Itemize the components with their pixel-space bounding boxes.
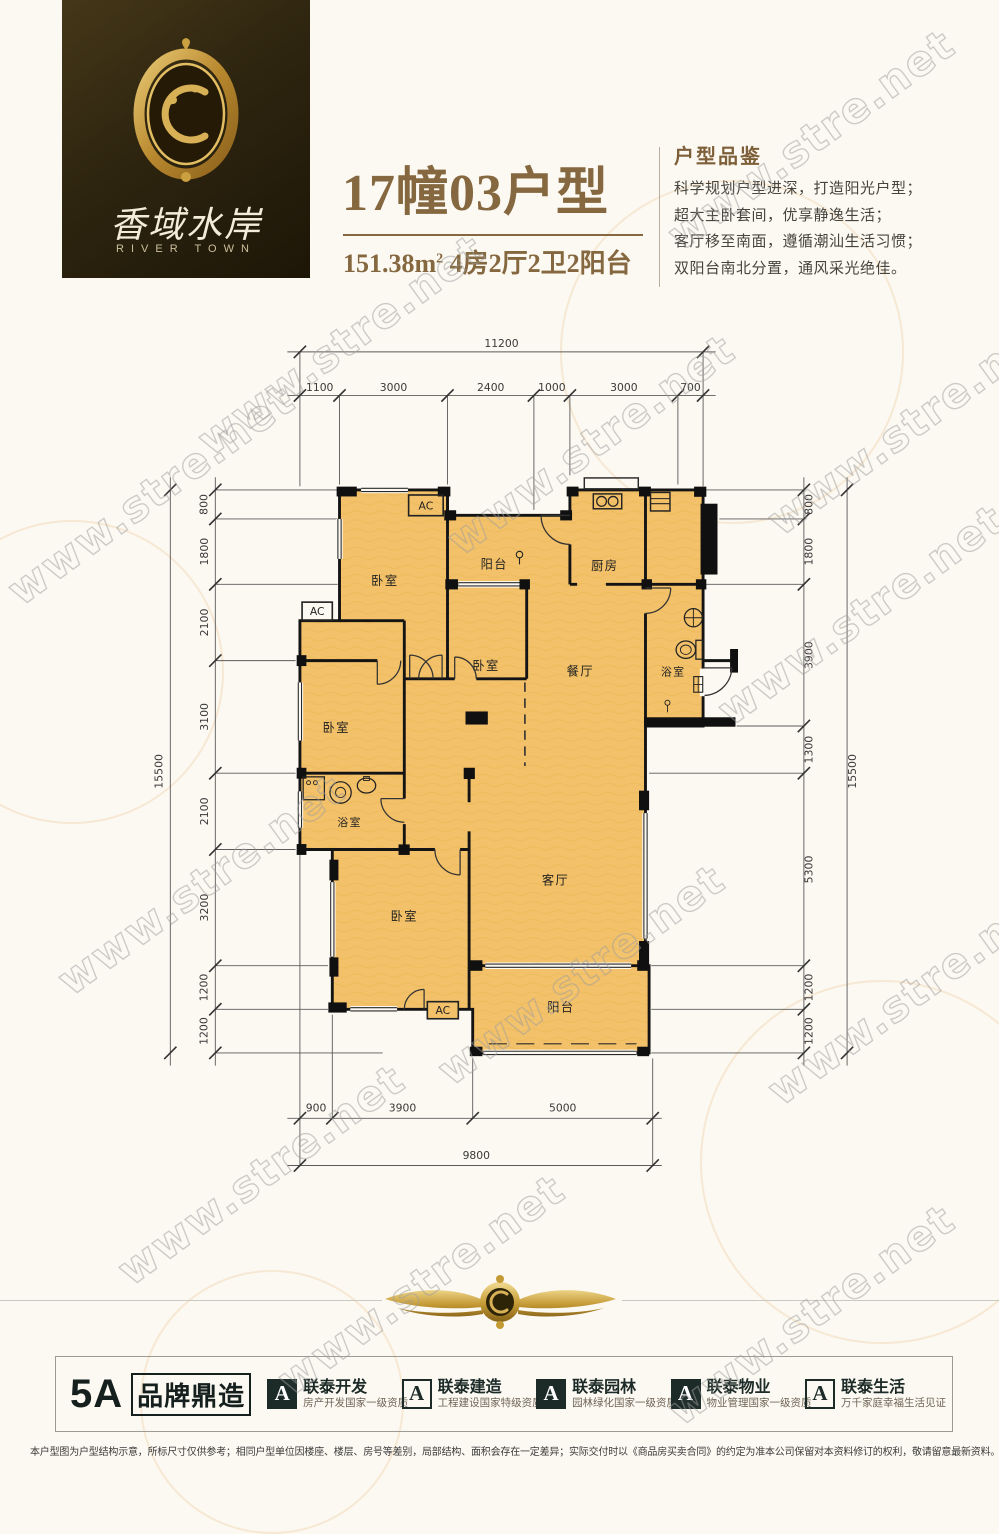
unit-layout: 4房2厅2卫2阳台 xyxy=(450,249,632,278)
brand-item-development: A 联泰开发 房产开发国家一级资质 xyxy=(267,1379,401,1409)
room-label-living: 客厅 xyxy=(542,872,569,887)
liantai-logo-icon: A xyxy=(267,1379,297,1409)
unit-area-summary: 151.38m2 4房2厅2卫2阳台 xyxy=(343,243,632,280)
unit-review-block: 户型品鉴 科学规划户型进深，打造阳光户型； 超大主卧套间，优享静逸生活； 客厅移… xyxy=(674,140,984,282)
dim-left-total: 15500 xyxy=(153,754,166,789)
brand-item-life: A 联泰生活 万千家庭幸福生活见证 xyxy=(805,1379,946,1409)
room-label-bedroom-4: 卧室 xyxy=(391,909,418,924)
five-a-badge-text: 品牌鼎造 xyxy=(131,1373,251,1416)
dim-top-seg: 3000 xyxy=(380,381,408,394)
five-a-plaque: 5A 品牌鼎造 xyxy=(70,1372,251,1417)
liantai-logo-icon: A xyxy=(536,1379,566,1409)
ac-label: AC xyxy=(419,499,434,512)
room-label-balcony-south: 阳台 xyxy=(547,999,574,1014)
page-title: 17幢03户型 xyxy=(342,150,609,225)
dim-right-seg: 800 xyxy=(803,494,816,515)
dim-left-seg: 2100 xyxy=(198,797,211,825)
brand-item-subtitle: 房产开发国家一级资质 xyxy=(303,1397,401,1409)
dim-left-seg: 1200 xyxy=(198,974,211,1002)
swan-crest-icon xyxy=(131,36,241,186)
brand-item-subtitle: 园林绿化国家一级资质 xyxy=(572,1397,670,1409)
dim-top-seg: 1100 xyxy=(306,381,334,394)
liantai-logo-icon: A xyxy=(805,1379,835,1409)
dim-left-seg: 2100 xyxy=(198,609,211,637)
brand-item-construction: A 联泰建造 工程建设国家特级资质 xyxy=(402,1379,536,1409)
room-label-bedroom-1: 卧室 xyxy=(371,573,398,588)
dim-bottom-seg: 3900 xyxy=(389,1102,417,1115)
dim-bottom-total: 9800 xyxy=(463,1149,491,1162)
dim-right-seg: 5300 xyxy=(803,856,816,884)
brand-item-title: 联泰物业 xyxy=(707,1379,805,1397)
brand-item-subtitle: 工程建设国家特级资质 xyxy=(438,1397,536,1409)
header-divider xyxy=(659,147,660,287)
title-underline xyxy=(343,234,643,236)
review-line: 超大主卧套间，优享静逸生活； xyxy=(674,203,984,230)
bathroom-sink-icon xyxy=(684,609,702,627)
dim-right-total: 15500 xyxy=(846,754,859,789)
brand-item-subtitle: 物业管理国家一级资质 xyxy=(707,1397,805,1409)
dim-right-seg: 1800 xyxy=(803,538,816,566)
dim-right-seg: 1200 xyxy=(803,974,816,1002)
review-line: 科学规划户型进深，打造阳光户型； xyxy=(674,176,984,203)
room-label-bathroom-1: 浴室 xyxy=(661,664,685,678)
brand-item-title: 联泰生活 xyxy=(841,1379,946,1397)
room-label-bedroom-3: 卧室 xyxy=(323,720,350,735)
brand-item-title: 联泰建造 xyxy=(438,1379,536,1397)
ac-label: AC xyxy=(310,605,325,618)
room-label-dining: 餐厅 xyxy=(567,663,594,678)
brand-name-chinese: 香域水岸 xyxy=(62,196,310,248)
footer-divider-left xyxy=(0,1300,382,1301)
brand-item-title: 联泰开发 xyxy=(303,1379,401,1397)
liantai-logo-icon: A xyxy=(671,1379,701,1409)
floorplan-drawing: 11200 1100 3000 2400 1000 3000 700 15500… xyxy=(130,325,900,1200)
disclaimer-text: 本户型图为户型结构示意，所标尺寸仅供参考；相同户型单位因楼座、楼层、房号等差别，… xyxy=(30,1443,970,1458)
brand-credentials-bar: 5A 品牌鼎造 A 联泰开发 房产开发国家一级资质 A 联泰建造 工程建设国家特… xyxy=(55,1356,953,1432)
review-line: 客厅移至南面，遵循潮汕生活习惯； xyxy=(674,229,984,256)
dim-right-seg: 1300 xyxy=(803,736,816,764)
footer-divider-right xyxy=(622,1300,999,1301)
area-superscript: 2 xyxy=(436,251,443,266)
dim-bottom-seg: 900 xyxy=(306,1102,327,1115)
brand-item-subtitle: 万千家庭幸福生活见证 xyxy=(841,1397,946,1409)
brand-name-english: RIVER TOWN xyxy=(62,243,310,255)
dim-top-seg: 3000 xyxy=(610,381,638,394)
dim-bottom-seg: 5000 xyxy=(549,1102,577,1115)
brand-item-property: A 联泰物业 物业管理国家一级资质 xyxy=(671,1379,805,1409)
dim-right-seg: 3900 xyxy=(803,641,816,669)
room-label-bathroom-2: 浴室 xyxy=(337,815,361,829)
dim-left-seg: 3100 xyxy=(198,703,211,731)
review-line: 双阳台南北分置，通风采光绝佳。 xyxy=(674,256,984,283)
dim-top-seg: 700 xyxy=(680,381,701,394)
five-a-badge: 5A xyxy=(70,1372,123,1417)
dim-top-seg: 2400 xyxy=(477,381,505,394)
dim-left-seg: 1200 xyxy=(198,1017,211,1045)
room-label-kitchen: 厨房 xyxy=(591,558,618,573)
dim-right-seg: 1200 xyxy=(803,1017,816,1045)
dim-left-seg: 3200 xyxy=(198,894,211,922)
brand-logo-panel: 香域水岸 RIVER TOWN xyxy=(62,0,310,278)
dim-left-seg: 800 xyxy=(198,494,211,515)
dim-top-total: 11200 xyxy=(484,337,518,350)
brand-item-landscape: A 联泰园林 园林绿化国家一级资质 xyxy=(536,1379,670,1409)
dim-left-seg: 1800 xyxy=(198,538,211,566)
dim-top-seg: 1000 xyxy=(538,381,566,394)
review-heading: 户型品鉴 xyxy=(674,140,984,169)
room-label-balcony-north: 阳台 xyxy=(481,556,508,571)
room-label-bedroom-2: 卧室 xyxy=(472,658,499,673)
ac-label: AC xyxy=(435,1004,450,1017)
liantai-logo-icon: A xyxy=(402,1379,432,1409)
unit-area: 151.38m xyxy=(343,249,436,278)
winged-emblem-icon xyxy=(383,1266,618,1336)
brand-item-title: 联泰园林 xyxy=(572,1379,670,1397)
